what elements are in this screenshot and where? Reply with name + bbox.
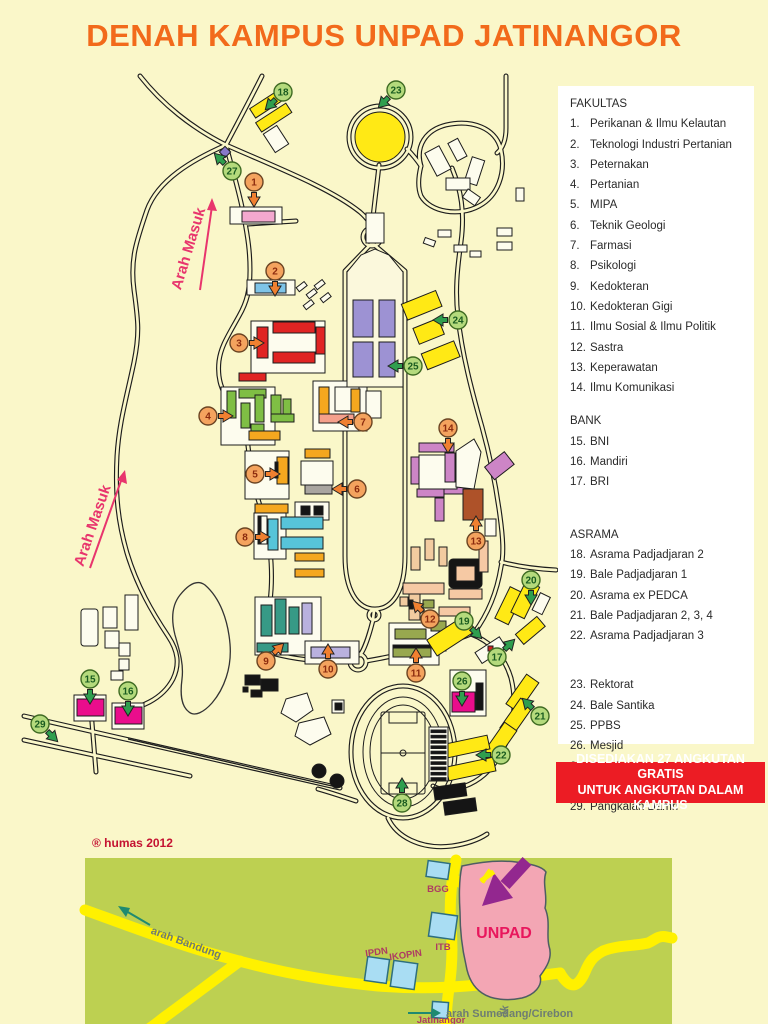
marker-number: 11	[411, 669, 422, 680]
legend-item-label: Ilmu Sosial & Ilmu Politik	[590, 317, 750, 337]
legend-section: FAKULTAS1.Perikanan & Ilmu Kelautan2.Tek…	[570, 94, 750, 398]
legend-item: 17.BRI	[570, 472, 750, 492]
legend-item-label: Asrama Padjadjaran 2	[590, 545, 750, 565]
legend-item: 25.PPBS	[570, 716, 750, 736]
legend-item: 4.Pertanian	[570, 175, 750, 195]
legend-item-label: Sastra	[590, 338, 750, 358]
legend-item: 2.Teknologi Industri Pertanian	[570, 135, 750, 155]
legend-item-label: Pertanian	[590, 175, 750, 195]
legend-item-label: Asrama ex PEDCA	[590, 586, 750, 606]
map-marker-17: 17	[488, 635, 519, 666]
marker-number: 1	[251, 178, 257, 189]
legend-item-label: Farmasi	[590, 236, 750, 256]
legend-item: 5.MIPA	[570, 195, 750, 215]
map-marker-6: 6	[332, 480, 366, 498]
arah-masuk-1: Arah Masuk	[168, 198, 217, 292]
legend-item: 16.Mandiri	[570, 452, 750, 472]
lake-outline	[173, 583, 231, 714]
marker-number: 7	[360, 418, 366, 429]
marker-number: 27	[226, 167, 238, 178]
legend-section: ASRAMA18.Asrama Padjadjaran 219.Bale Pad…	[570, 525, 750, 647]
legend-item: 22.Asrama Padjadjaran 3	[570, 626, 750, 646]
legend-item: 11.Ilmu Sosial & Ilmu Politik	[570, 317, 750, 337]
marker-arrow-icon	[396, 778, 408, 793]
legend-item-label: MIPA	[590, 195, 750, 215]
legend-item-label: PPBS	[590, 716, 750, 736]
legend-panel: FAKULTAS1.Perikanan & Ilmu Kelautan2.Tek…	[558, 86, 754, 744]
legend-item-number: 7.	[570, 236, 590, 256]
banner-line-1: DISEDIAKAN 27 ANGKUTAN GRATIS	[556, 752, 765, 783]
map-marker-13: 13	[467, 516, 485, 550]
legend-item: 8.Psikologi	[570, 256, 750, 276]
legend-item: 21.Bale Padjadjaran 2, 3, 4	[570, 606, 750, 626]
legend-item: 19.Bale Padjadjaran 1	[570, 565, 750, 585]
legend-item: 24.Bale Santika	[570, 696, 750, 716]
arah-masuk-label: Arah Masuk	[71, 482, 115, 569]
legend-item-label: Ilmu Komunikasi	[590, 378, 750, 398]
legend-item-label: Teknik Geologi	[590, 216, 750, 236]
marker-number: 4	[205, 412, 211, 423]
legend-item-label: BRI	[590, 472, 750, 492]
legend-item-number: 10.	[570, 297, 590, 317]
legend-item: 6.Teknik Geologi	[570, 216, 750, 236]
marker-number: 21	[534, 712, 546, 723]
map-marker-1: 1	[245, 173, 263, 207]
marker-number: 16	[122, 687, 134, 698]
legend-item-number: 25.	[570, 716, 590, 736]
legend-section-header: ASRAMA	[570, 525, 750, 545]
road-median-line	[128, 739, 332, 786]
marker-number: 6	[354, 485, 360, 496]
marker-number: 26	[456, 677, 468, 688]
legend-item-label: Perikanan & Ilmu Kelautan	[590, 114, 750, 134]
legend-item-number: 14.	[570, 378, 590, 398]
inset-map: BGG ITB IPDN IKOPIN Jatinangor UNPAD ara…	[85, 858, 672, 1024]
legend-item-number: 21.	[570, 606, 590, 626]
legend-section-header: FAKULTAS	[570, 94, 750, 114]
marker-number: 3	[236, 339, 242, 350]
arah-masuk-label: Arah Masuk	[168, 205, 209, 292]
legend-item-label: Bale Padjadjaran 2, 3, 4	[590, 606, 750, 626]
legend-item-label: Keperawatan	[590, 358, 750, 378]
legend-item: 13.Keperawatan	[570, 358, 750, 378]
marker-number: 29	[34, 720, 46, 731]
marker-number: 24	[452, 316, 464, 327]
legend-item-label: Kedokteran	[590, 277, 750, 297]
legend-item-number: 12.	[570, 338, 590, 358]
legend-item: 3.Peternakan	[570, 155, 750, 175]
legend-item-number: 23.	[570, 675, 590, 695]
legend-item-number: 13.	[570, 358, 590, 378]
legend-item: 12.Sastra	[570, 338, 750, 358]
legend-item-number: 16.	[570, 452, 590, 472]
legend-item-label: Bale Padjadjaran 1	[590, 565, 750, 585]
legend-item-number: 20.	[570, 586, 590, 606]
marker-number: 20	[525, 576, 537, 587]
legend-item-number: 11.	[570, 317, 590, 337]
legend-item-number: 24.	[570, 696, 590, 716]
marker-number: 19	[458, 617, 470, 628]
legend-item-label: Teknologi Industri Pertanian	[590, 135, 750, 155]
legend-item-number: 22.	[570, 626, 590, 646]
marker-number: 9	[263, 657, 269, 668]
legend-item-number: 1.	[570, 114, 590, 134]
marker-number: 22	[495, 751, 507, 762]
legend-item-number: 19.	[570, 565, 590, 585]
marker-number: 8	[242, 533, 248, 544]
arrow-up-icon	[207, 198, 217, 211]
legend-item: 23.Rektorat	[570, 675, 750, 695]
legend-item: 10.Kedokteran Gigi	[570, 297, 750, 317]
legend-item-label: Kedokteran Gigi	[590, 297, 750, 317]
legend-item: 7.Farmasi	[570, 236, 750, 256]
legend-item-number: 8.	[570, 256, 590, 276]
legend-item-number: 17.	[570, 472, 590, 492]
marker-number: 2	[272, 267, 278, 278]
credit-text: ® humas 2012	[92, 836, 173, 850]
marker-number: 18	[277, 88, 289, 99]
inset-label-bgg: BGG	[427, 884, 449, 895]
shuttle-banner: DISEDIAKAN 27 ANGKUTAN GRATIS UNTUK ANGK…	[556, 762, 765, 803]
marker-number: 13	[470, 537, 482, 548]
marker-number: 14	[442, 424, 454, 435]
page: DENAH KAMPUS UNPAD JATINANGOR	[0, 0, 768, 1024]
legend-item-number: 4.	[570, 175, 590, 195]
legend-item: 20.Asrama ex PEDCA	[570, 586, 750, 606]
legend-section: BANK15.BNI16.Mandiri17.BRI	[570, 411, 750, 492]
marker-number: 25	[407, 362, 419, 373]
legend-item-label: Rektorat	[590, 675, 750, 695]
marker-number: 10	[322, 665, 334, 676]
marker-number: 15	[84, 675, 96, 686]
marker-number: 28	[396, 799, 408, 810]
legend-item-label: Psikologi	[590, 256, 750, 276]
marker-number: 23	[390, 86, 402, 97]
legend-item-number: 9.	[570, 277, 590, 297]
legend-item-number: 5.	[570, 195, 590, 215]
marker-number: 5	[252, 470, 258, 481]
legend-item-number: 18.	[570, 545, 590, 565]
legend-item: 9.Kedokteran	[570, 277, 750, 297]
legend-item-number: 15.	[570, 432, 590, 452]
marker-number: 12	[424, 615, 436, 626]
legend-item-number: 6.	[570, 216, 590, 236]
inset-label-unpad: UNPAD	[476, 925, 532, 942]
legend-item: 14.Ilmu Komunikasi	[570, 378, 750, 398]
marker-arrow-icon	[248, 193, 260, 208]
legend-section-header: BANK	[570, 411, 750, 431]
banner-line-2: UNTUK ANGKUTAN DALAM KAMPUS	[556, 783, 765, 814]
legend-item-number: 3.	[570, 155, 590, 175]
legend-item: 18.Asrama Padjadjaran 2	[570, 545, 750, 565]
marker-number: 17	[491, 653, 503, 664]
legend-item-label: Mandiri	[590, 452, 750, 472]
legend-item: 15.BNI	[570, 432, 750, 452]
legend-item-label: BNI	[590, 432, 750, 452]
inset-label-itb: ITB	[435, 942, 450, 953]
legend-item-label: Bale Santika	[590, 696, 750, 716]
legend-item-label: Peternakan	[590, 155, 750, 175]
legend-item: 1.Perikanan & Ilmu Kelautan	[570, 114, 750, 134]
legend-item-label: Asrama Padjadjaran 3	[590, 626, 750, 646]
legend-item-number: 2.	[570, 135, 590, 155]
